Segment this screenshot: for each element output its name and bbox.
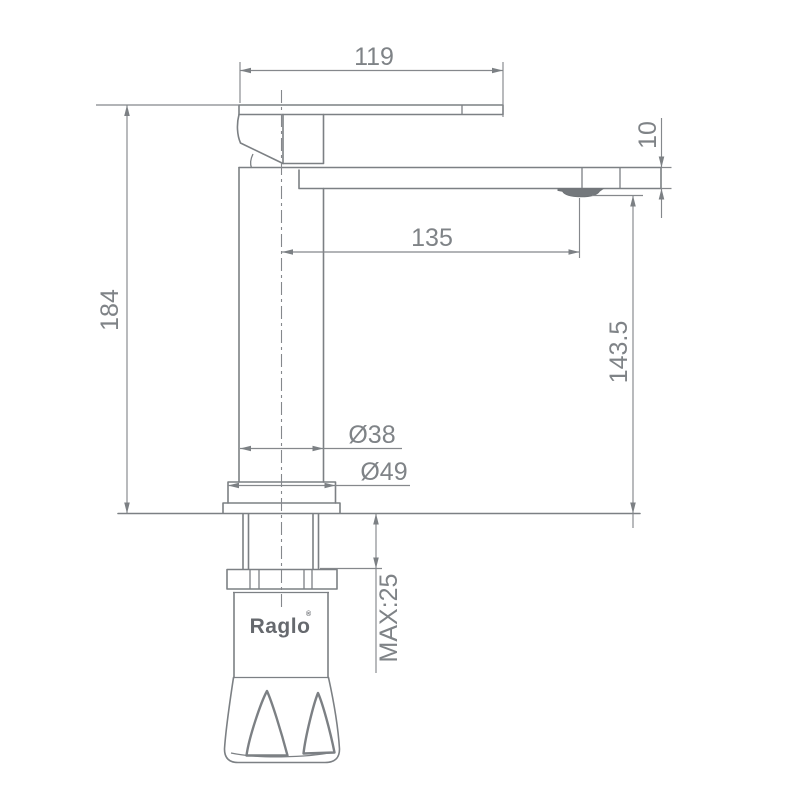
dim-label-max25: MAX:25 bbox=[375, 574, 403, 663]
technical-drawing: Raglo ® 119 10 bbox=[0, 0, 800, 800]
threaded-shank bbox=[243, 514, 319, 569]
knob-wing-right bbox=[304, 693, 335, 754]
dim-label-119: 119 bbox=[354, 43, 394, 71]
dim-label-38: Ø38 bbox=[348, 421, 395, 449]
dim-label-143-5: 143.5 bbox=[605, 321, 633, 384]
dim-135-arrow-left bbox=[282, 249, 293, 255]
handle-neck bbox=[283, 115, 324, 164]
dim-38-body-diameter: Ø38 bbox=[240, 421, 402, 451]
dim-label-135: 135 bbox=[411, 224, 453, 252]
lever-bar bbox=[239, 105, 503, 115]
dim-max25-lines bbox=[320, 514, 382, 674]
dim-max25-arrow-up bbox=[373, 514, 379, 525]
dim-49-arrow-right bbox=[325, 483, 336, 489]
brand-logo: Raglo bbox=[250, 615, 311, 638]
dim-49-arrow-left bbox=[228, 483, 239, 489]
dim-label-10: 10 bbox=[634, 121, 662, 149]
spout bbox=[239, 168, 661, 197]
dim-119-arrow-left bbox=[240, 68, 251, 74]
dim-max25-arrow-down bbox=[373, 558, 379, 569]
handle-pivot-arc bbox=[251, 154, 253, 168]
technical-drawing-page: Raglo ® 119 10 bbox=[0, 0, 800, 800]
spout-bottom bbox=[299, 170, 661, 189]
dim-119-spout-top-width: 119 bbox=[240, 43, 503, 117]
dim-49-base-diameter: Ø49 bbox=[228, 458, 410, 488]
dim-38-arrow-right bbox=[313, 446, 324, 452]
brand-registered-mark: ® bbox=[306, 610, 312, 618]
knurled-knob bbox=[225, 678, 340, 763]
dim-10-arrow-down bbox=[659, 157, 665, 168]
dim-184-total-height: 184 bbox=[96, 105, 239, 514]
dim-184-arrow-down bbox=[124, 503, 130, 514]
lever-handle bbox=[237, 105, 503, 168]
dim-10-arrow-up bbox=[659, 189, 665, 200]
dimensions: 119 10 135 184 143.5 bbox=[96, 43, 672, 673]
handle-back bbox=[237, 115, 283, 164]
knob-skirt bbox=[225, 678, 340, 763]
dim-119-arrow-right bbox=[492, 68, 503, 74]
dim-max25-mounting-thickness: MAX:25 bbox=[320, 514, 403, 674]
dim-135-arrow-right bbox=[569, 249, 580, 255]
spout-segment-ticks bbox=[582, 168, 620, 189]
shank-walls bbox=[243, 514, 319, 569]
dim-143-5-arrow-up bbox=[630, 196, 636, 207]
dim-143-5-arrow-down bbox=[630, 503, 636, 514]
dim-10-lines bbox=[661, 118, 672, 218]
dim-184-arrow-up bbox=[124, 105, 130, 116]
dim-label-184: 184 bbox=[96, 289, 124, 331]
knob-wing-left bbox=[247, 691, 288, 756]
dim-label-49: Ø49 bbox=[360, 458, 407, 486]
dim-38-arrow-left bbox=[240, 446, 251, 452]
dim-135-spout-reach: 135 bbox=[282, 198, 580, 258]
dim-143-5-outlet-height: 143.5 bbox=[592, 196, 643, 529]
base-flange bbox=[118, 482, 640, 514]
